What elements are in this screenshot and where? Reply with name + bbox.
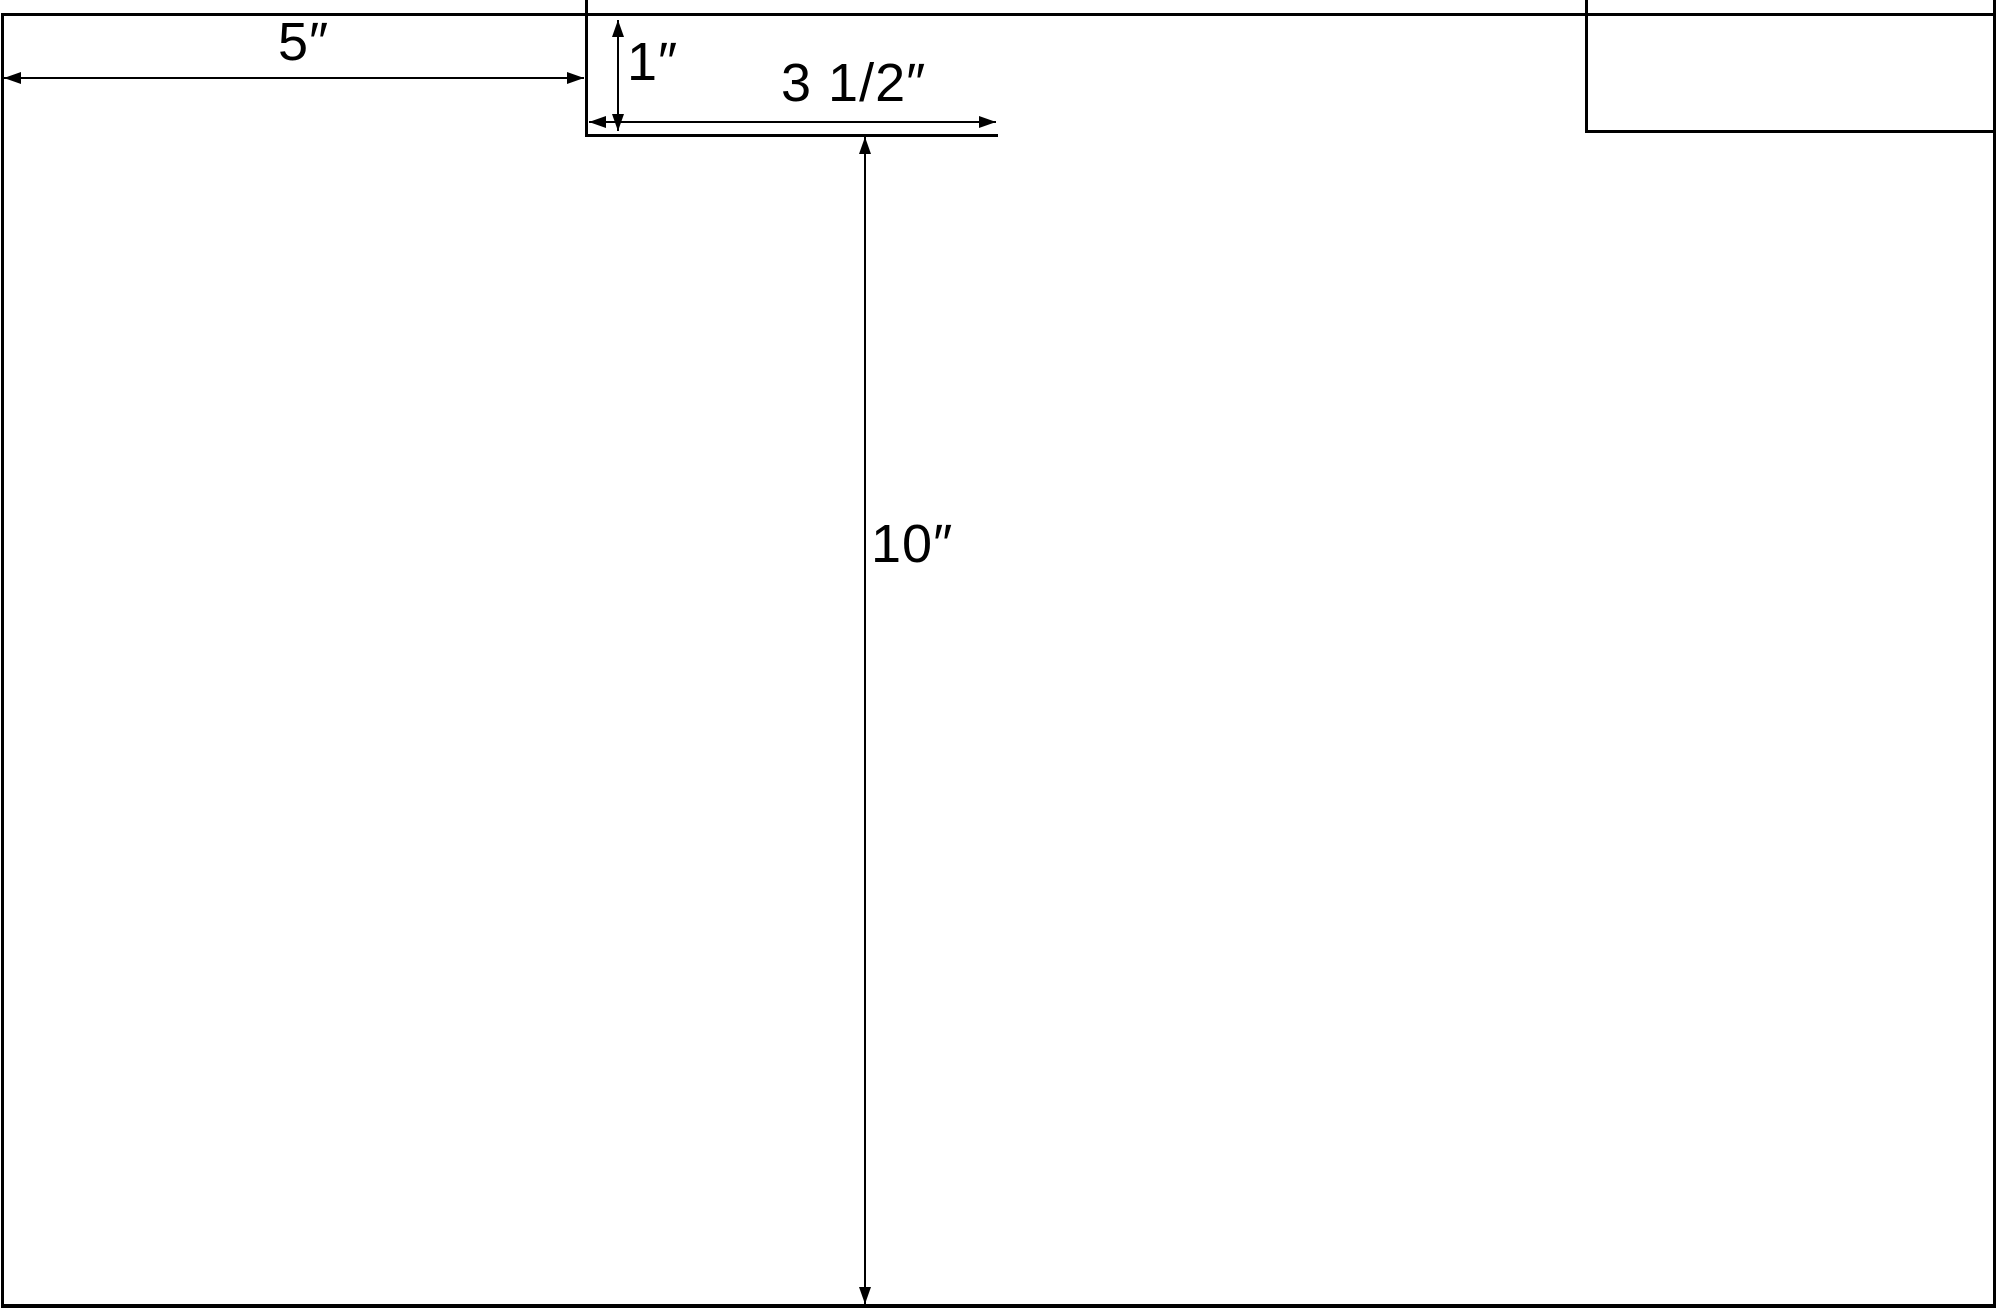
dimension-3-5in-line bbox=[589, 121, 996, 123]
right-tab-bottom-edge bbox=[1585, 130, 1996, 133]
dimension-3-5in-arrowhead-right bbox=[979, 116, 996, 128]
dimension-10in-arrowhead-bottom bbox=[859, 1287, 871, 1304]
dimension-10in-line bbox=[864, 137, 866, 1304]
sheet-right-edge bbox=[1993, 0, 1996, 1308]
right-tab-side-edge bbox=[1585, 0, 1588, 133]
dimension-3-5in-label: 3 1/2″ bbox=[781, 56, 926, 110]
dimension-diagram: 5″ 1″ 3 1/2″ 10″ bbox=[0, 0, 1999, 1310]
left-tab-bottom-edge bbox=[585, 134, 998, 137]
dimension-1in-arrowhead-top bbox=[612, 20, 624, 37]
dimension-10in-arrowhead-top bbox=[859, 137, 871, 154]
dimension-5in-arrowhead-right bbox=[567, 72, 584, 84]
sheet-left-edge bbox=[1, 13, 4, 1308]
dimension-1in-label: 1″ bbox=[627, 35, 678, 89]
dimension-5in-arrowhead-left bbox=[4, 72, 21, 84]
sheet-bottom-edge bbox=[1, 1304, 1996, 1308]
dimension-10in-label: 10″ bbox=[871, 517, 953, 571]
dimension-3-5in-arrowhead-left bbox=[589, 116, 606, 128]
dimension-5in-line bbox=[4, 77, 584, 79]
left-tab-side-edge bbox=[585, 0, 588, 136]
dimension-5in-label: 5″ bbox=[278, 15, 329, 69]
